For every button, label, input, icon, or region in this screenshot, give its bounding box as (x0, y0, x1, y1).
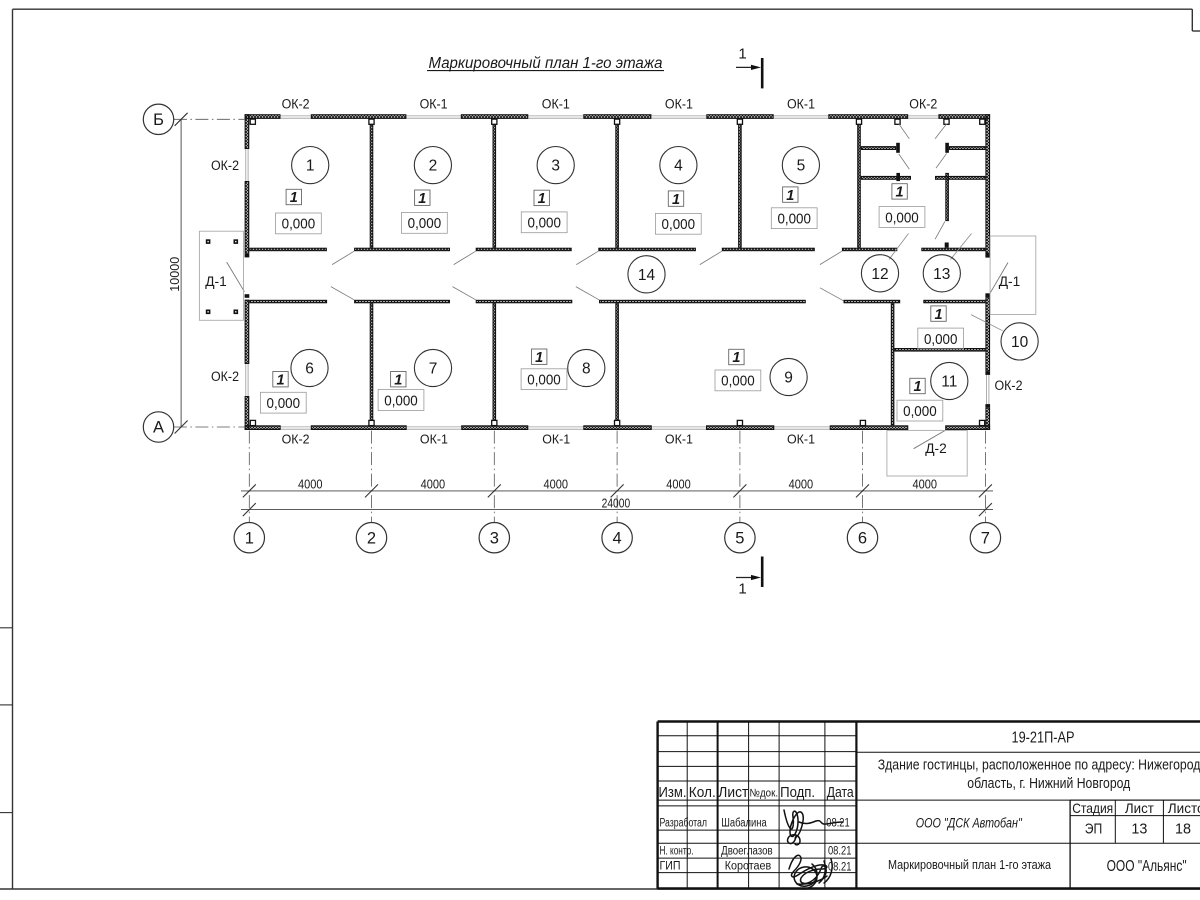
svg-text:4000: 4000 (298, 476, 323, 491)
svg-text:1: 1 (394, 372, 402, 388)
svg-text:ОК-1: ОК-1 (542, 432, 570, 447)
svg-text:область, г. Нижний Новгород: область, г. Нижний Новгород (967, 776, 1130, 792)
svg-text:ОК-1: ОК-1 (420, 432, 448, 447)
svg-text:Стадия: Стадия (1072, 800, 1113, 816)
svg-text:10: 10 (1011, 334, 1029, 351)
svg-text:14: 14 (638, 267, 656, 284)
svg-text:0,000: 0,000 (777, 211, 811, 228)
svg-text:Д-1: Д-1 (205, 274, 227, 289)
svg-text:1: 1 (934, 307, 942, 323)
svg-text:ООО "Альянс": ООО "Альянс" (1107, 858, 1187, 875)
svg-text:Коротаев: Коротаев (725, 861, 772, 873)
svg-text:ОК-1: ОК-1 (420, 96, 448, 111)
svg-text:Здание гостинцы, расположенное: Здание гостинцы, расположенное по адресу… (878, 758, 1200, 774)
svg-text:3: 3 (551, 158, 560, 175)
svg-text:10000: 10000 (167, 257, 182, 292)
svg-text:2: 2 (367, 529, 376, 547)
svg-text:А: А (153, 419, 164, 437)
svg-text:Изм.: Изм. (659, 785, 687, 801)
svg-text:13: 13 (1131, 821, 1147, 838)
svg-text:1: 1 (418, 191, 426, 207)
svg-text:1: 1 (732, 350, 740, 366)
svg-text:1: 1 (538, 191, 546, 207)
svg-text:7: 7 (981, 529, 990, 547)
svg-text:4000: 4000 (421, 476, 446, 491)
svg-text:2: 2 (429, 158, 438, 175)
svg-text:4: 4 (674, 158, 683, 175)
svg-text:0,000: 0,000 (527, 215, 561, 232)
svg-text:12: 12 (871, 266, 888, 283)
svg-text:Лист: Лист (1125, 800, 1155, 816)
svg-text:1: 1 (290, 190, 298, 206)
svg-text:1: 1 (738, 581, 746, 598)
svg-text:6: 6 (305, 361, 314, 378)
svg-text:6: 6 (858, 529, 867, 547)
svg-text:4: 4 (613, 529, 622, 547)
svg-text:№док.: №док. (750, 787, 779, 799)
svg-text:13: 13 (933, 266, 950, 283)
svg-text:0,000: 0,000 (662, 216, 696, 233)
svg-text:0,000: 0,000 (384, 392, 418, 409)
svg-text:24000: 24000 (602, 496, 631, 511)
svg-text:ОК-2: ОК-2 (282, 432, 310, 447)
svg-text:1: 1 (913, 379, 921, 395)
svg-text:ОК-1: ОК-1 (665, 96, 693, 111)
svg-text:19-21П-АР: 19-21П-АР (1012, 730, 1075, 747)
svg-text:Подп.: Подп. (780, 785, 815, 801)
svg-text:ОК-2: ОК-2 (211, 158, 239, 173)
svg-text:ОК-1: ОК-1 (787, 96, 815, 111)
svg-text:4000: 4000 (912, 476, 937, 491)
svg-text:Маркировочный план 1-го этажа: Маркировочный план 1-го этажа (429, 55, 663, 72)
svg-text:18: 18 (1175, 821, 1191, 838)
svg-text:1: 1 (896, 185, 904, 201)
svg-text:Д-1: Д-1 (999, 274, 1021, 289)
svg-text:08.21: 08.21 (828, 846, 852, 858)
svg-text:ОК-1: ОК-1 (542, 96, 570, 111)
svg-text:Разработал: Разработал (660, 818, 708, 830)
svg-text:5: 5 (735, 529, 744, 547)
svg-text:ОК-1: ОК-1 (787, 432, 815, 447)
svg-text:0,000: 0,000 (721, 373, 755, 390)
svg-text:0,000: 0,000 (885, 209, 919, 226)
svg-text:3: 3 (490, 529, 499, 547)
svg-text:ООО "ДСК Автобан": ООО "ДСК Автобан" (916, 816, 1023, 831)
svg-text:7: 7 (429, 361, 438, 378)
svg-text:Д-2: Д-2 (925, 441, 947, 456)
svg-text:1: 1 (672, 192, 680, 208)
svg-text:Кол.: Кол. (689, 785, 716, 801)
svg-text:1: 1 (276, 372, 284, 388)
svg-text:0,000: 0,000 (527, 372, 561, 389)
svg-text:1: 1 (306, 158, 315, 175)
svg-text:0,000: 0,000 (924, 331, 958, 348)
svg-text:Листов: Листов (1168, 800, 1200, 816)
svg-text:Лист: Лист (718, 785, 748, 801)
svg-text:1: 1 (786, 188, 794, 204)
svg-text:Б: Б (153, 111, 164, 129)
svg-text:8: 8 (582, 361, 591, 378)
svg-text:0,000: 0,000 (408, 215, 442, 232)
svg-text:1: 1 (535, 350, 543, 366)
svg-text:Н. контр.: Н. контр. (660, 846, 694, 858)
svg-text:ОК-1: ОК-1 (665, 432, 693, 447)
svg-text:Маркировочный план 1-го этажа: Маркировочный план 1-го этажа (888, 857, 1052, 872)
svg-text:ГИП: ГИП (660, 861, 681, 873)
svg-text:0,000: 0,000 (903, 403, 937, 420)
svg-text:Дата: Дата (827, 785, 855, 801)
svg-text:ОК-2: ОК-2 (211, 369, 239, 384)
svg-text:4000: 4000 (543, 476, 568, 491)
svg-text:ОК-2: ОК-2 (995, 378, 1023, 393)
svg-text:4000: 4000 (789, 476, 814, 491)
svg-text:1: 1 (245, 529, 254, 547)
svg-text:0,000: 0,000 (267, 395, 301, 412)
svg-text:ОК-2: ОК-2 (909, 96, 937, 111)
svg-text:Двоеглазов: Двоеглазов (721, 846, 773, 858)
svg-text:5: 5 (797, 158, 806, 175)
svg-text:9: 9 (784, 370, 793, 387)
svg-text:1: 1 (738, 46, 746, 63)
svg-text:0,000: 0,000 (282, 216, 316, 233)
svg-text:ОК-2: ОК-2 (282, 96, 310, 111)
svg-text:Шабалина: Шабалина (721, 818, 767, 830)
svg-text:11: 11 (941, 374, 957, 391)
svg-text:ЭП: ЭП (1085, 821, 1103, 838)
svg-text:4000: 4000 (666, 476, 691, 491)
